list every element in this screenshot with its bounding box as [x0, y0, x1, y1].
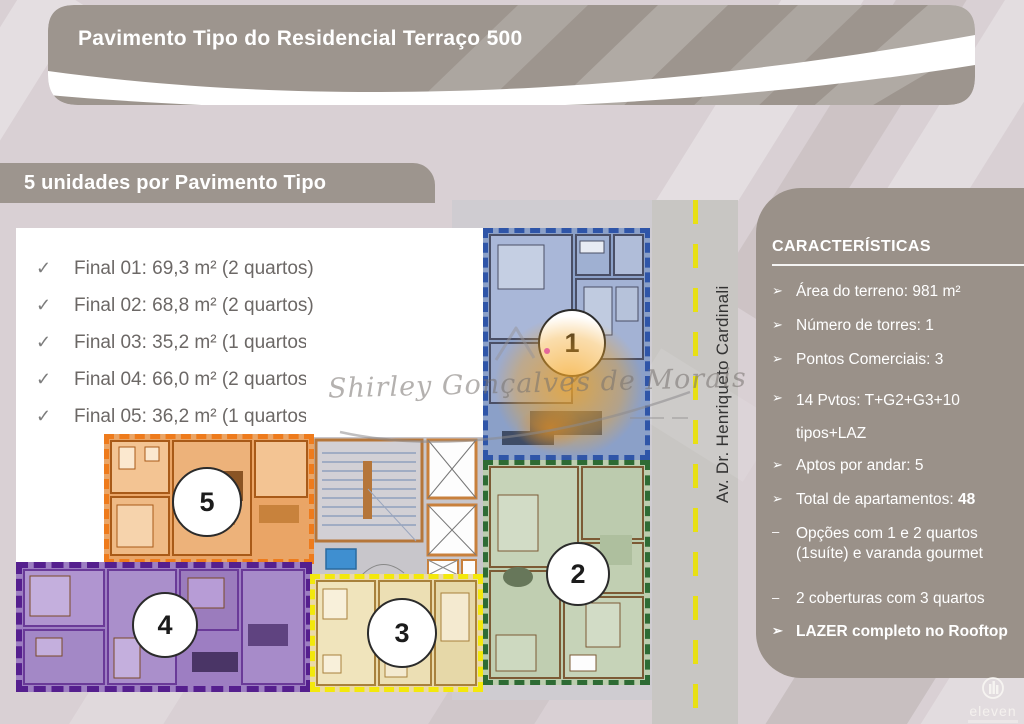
subtitle-banner: 5 unidades por Pavimento Tipo — [0, 163, 435, 203]
panel-item: –2 coberturas com 3 quartos — [772, 589, 1016, 610]
header-banner: Pavimento Tipo do Residencial Terraço 50… — [48, 5, 975, 111]
panel-item: ➢Área do terreno: 981 m² — [772, 282, 1016, 303]
panel-item: –Opções com 1 e 2 quartos (1suíte) e var… — [772, 524, 1016, 564]
panel-item-bold-value: 48 — [958, 491, 975, 508]
header-banner-shape — [48, 5, 975, 111]
list-item: ✓Final 03: 35,2 m² (1 quartos) — [36, 324, 306, 361]
check-icon: ✓ — [36, 250, 74, 287]
unit-3-badge: 3 — [367, 598, 437, 668]
page-title: Pavimento Tipo do Residencial Terraço 50… — [78, 27, 523, 51]
unit-1-badge: 1 — [538, 309, 606, 377]
dash-bullet-icon: – — [772, 524, 779, 541]
watermark-dot — [544, 348, 550, 354]
list-item: ✓Final 04: 66,0 m² (2 quartos) — [36, 361, 306, 398]
eleven-logo-tagline-bar — [968, 720, 1018, 723]
street-label: Av. Dr. Henriqueto Cardinali — [685, 417, 705, 503]
characteristics-panel: CARACTERÍSTICAS ➢Área do terreno: 981 m²… — [756, 188, 1024, 678]
check-icon: ✓ — [36, 398, 74, 435]
arrow-bullet-icon: ➢ — [772, 384, 783, 412]
unit-2-badge: 2 — [546, 542, 610, 606]
core-drawing — [312, 437, 483, 578]
panel-list: ➢Área do terreno: 981 m² ➢Número de torr… — [772, 282, 1016, 643]
arrow-bullet-icon: ➢ — [772, 316, 783, 334]
panel-item: ➢14 Pvtos: T+G2+G3+10 tipos+LAZ — [772, 384, 1016, 451]
eleven-logo-icon — [981, 676, 1005, 700]
arrow-bullet-icon: ➢ — [772, 622, 783, 640]
eleven-logo-word: eleven — [962, 703, 1024, 719]
panel-title-underline — [772, 264, 1024, 266]
dash-bullet-icon: – — [772, 589, 779, 607]
arrow-bullet-icon: ➢ — [772, 350, 783, 368]
list-item: ✓Final 01: 69,3 m² (2 quartos) — [36, 250, 483, 287]
check-icon: ✓ — [36, 361, 74, 398]
arrow-bullet-icon: ➢ — [772, 282, 783, 300]
list-item: ✓Final 05: 36,2 m² (1 quartos) — [36, 398, 306, 435]
unit-5-badge: 5 — [172, 467, 242, 537]
unit-list: ✓Final 01: 69,3 m² (2 quartos) ✓Final 02… — [16, 250, 483, 435]
check-icon: ✓ — [36, 324, 74, 361]
arrow-bullet-icon: ➢ — [772, 456, 783, 474]
panel-title: CARACTERÍSTICAS — [772, 238, 1016, 256]
stair-elevator-core — [312, 437, 483, 578]
check-icon: ✓ — [36, 287, 74, 324]
list-item: ✓Final 02: 68,8 m² (2 quartos) — [36, 287, 483, 324]
unit-4-badge: 4 — [132, 592, 198, 658]
arrow-bullet-icon: ➢ — [772, 490, 783, 508]
subtitle-text: 5 unidades por Pavimento Tipo — [0, 172, 326, 195]
panel-item: ➢Número de torres: 1 — [772, 316, 1016, 337]
eleven-logo: eleven — [962, 676, 1024, 724]
slide: Pavimento Tipo do Residencial Terraço 50… — [0, 0, 1024, 724]
panel-item: ➢Aptos por andar: 5 — [772, 456, 1016, 477]
panel-item: ➢Total de apartamentos: 48 — [772, 490, 1016, 511]
panel-item: ➢LAZER completo no Rooftop — [772, 622, 1016, 643]
panel-item: ➢Pontos Comerciais: 3 — [772, 350, 1016, 371]
